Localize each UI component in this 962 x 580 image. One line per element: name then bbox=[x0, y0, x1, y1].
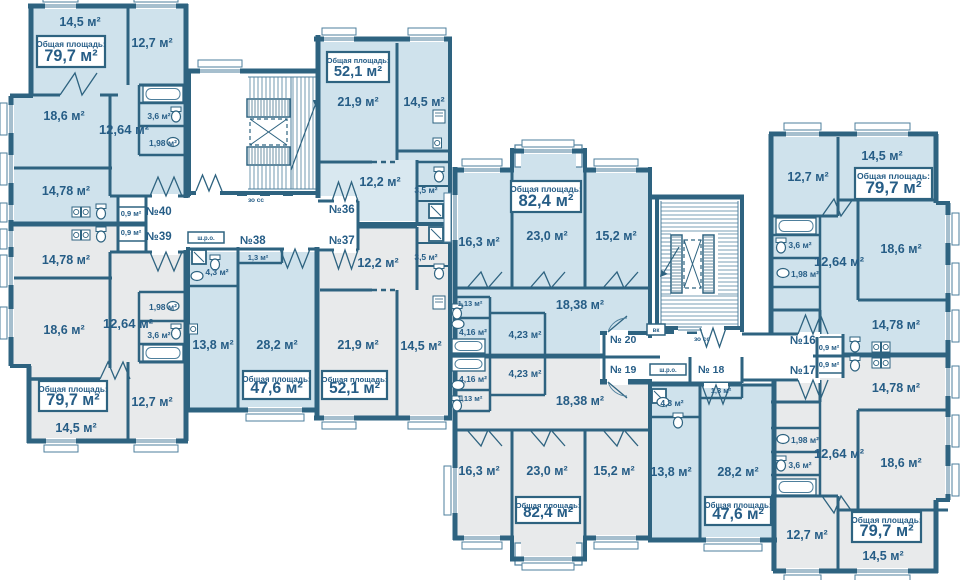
svg-text:1,13 м²: 1,13 м² bbox=[458, 299, 483, 308]
svg-text:0,9 м²: 0,9 м² bbox=[819, 360, 840, 369]
svg-text:23,0 м²: 23,0 м² bbox=[526, 464, 567, 478]
svg-text:79,7 м²: 79,7 м² bbox=[46, 391, 100, 409]
svg-text:1,98 м²: 1,98 м² bbox=[791, 269, 819, 279]
svg-text:47,6 м²: 47,6 м² bbox=[712, 506, 764, 523]
svg-text:4,3 м²: 4,3 м² bbox=[205, 267, 228, 277]
svg-text:12,7 м²: 12,7 м² bbox=[787, 170, 828, 184]
svg-text:4,3 м²: 4,3 м² bbox=[660, 398, 683, 408]
svg-text:№39: №39 bbox=[146, 231, 172, 243]
svg-text:№ 18: № 18 bbox=[698, 364, 724, 376]
svg-text:12,64 м²: 12,64 м² bbox=[99, 122, 150, 137]
svg-text:3,5 м²: 3,5 м² bbox=[414, 185, 437, 195]
svg-text:28,2 м²: 28,2 м² bbox=[256, 338, 297, 352]
svg-text:82,4 м²: 82,4 м² bbox=[523, 504, 573, 521]
svg-text:3,5 м²: 3,5 м² bbox=[414, 252, 437, 262]
svg-text:14,78 м²: 14,78 м² bbox=[872, 318, 920, 332]
svg-text:12,7 м²: 12,7 м² bbox=[131, 395, 172, 409]
svg-text:18,38 м²: 18,38 м² bbox=[556, 298, 604, 312]
svg-text:1,3 м²: 1,3 м² bbox=[711, 386, 732, 395]
svg-text:14,5 м²: 14,5 м² bbox=[861, 149, 902, 163]
svg-text:14,78 м²: 14,78 м² bbox=[42, 184, 90, 198]
svg-text:12,7 м²: 12,7 м² bbox=[131, 36, 172, 50]
svg-text:1,98 м²: 1,98 м² bbox=[791, 435, 819, 445]
svg-text:15,2 м²: 15,2 м² bbox=[593, 464, 634, 478]
svg-text:21,9 м²: 21,9 м² bbox=[337, 95, 378, 109]
svg-text:12,64 м²: 12,64 м² bbox=[103, 316, 154, 331]
svg-text:12,64 м²: 12,64 м² bbox=[814, 446, 865, 461]
svg-text:79,7 м²: 79,7 м² bbox=[859, 522, 914, 540]
svg-text:3,6 м²: 3,6 м² bbox=[788, 460, 811, 470]
svg-text:23,0 м²: 23,0 м² bbox=[526, 229, 567, 243]
svg-text:14,5 м²: 14,5 м² bbox=[55, 421, 96, 435]
svg-text:18,38 м²: 18,38 м² bbox=[556, 394, 604, 408]
svg-text:0,9 м²: 0,9 м² bbox=[121, 228, 142, 237]
svg-text:18,6 м²: 18,6 м² bbox=[43, 323, 84, 337]
svg-text:12,64 м²: 12,64 м² bbox=[814, 254, 865, 269]
svg-text:зо сс: зо сс bbox=[694, 336, 710, 343]
svg-text:52,1 м²: 52,1 м² bbox=[334, 64, 382, 80]
svg-text:1,98 м²: 1,98 м² bbox=[149, 138, 177, 148]
svg-text:№40: №40 bbox=[146, 206, 172, 218]
svg-text:3,6 м²: 3,6 м² bbox=[788, 240, 811, 250]
svg-text:14,78 м²: 14,78 м² bbox=[872, 381, 920, 395]
svg-text:4,16 м²: 4,16 м² bbox=[459, 327, 487, 337]
svg-text:№16: №16 bbox=[790, 335, 816, 347]
svg-text:0,9 м²: 0,9 м² bbox=[819, 343, 840, 352]
svg-text:18,6 м²: 18,6 м² bbox=[880, 242, 921, 256]
svg-text:4,16 м²: 4,16 м² bbox=[459, 374, 487, 384]
svg-text:1,13 м²: 1,13 м² bbox=[458, 394, 483, 403]
svg-text:18,6 м²: 18,6 м² bbox=[880, 456, 921, 470]
svg-text:вк: вк bbox=[653, 328, 660, 334]
svg-text:3,6 м²: 3,6 м² bbox=[147, 111, 170, 121]
svg-text:21,9 м²: 21,9 м² bbox=[337, 338, 378, 352]
svg-text:3,6 м²: 3,6 м² bbox=[147, 330, 170, 340]
svg-text:28,2 м²: 28,2 м² bbox=[717, 465, 758, 479]
svg-text:16,3 м²: 16,3 м² bbox=[458, 464, 499, 478]
svg-text:4,23 м²: 4,23 м² bbox=[509, 330, 543, 341]
svg-text:12,2 м²: 12,2 м² bbox=[359, 175, 400, 189]
svg-text:14,5 м²: 14,5 м² bbox=[403, 95, 444, 109]
svg-text:79,7 м²: 79,7 м² bbox=[865, 178, 921, 197]
svg-text:79,7 м²: 79,7 м² bbox=[44, 47, 98, 65]
svg-text:13,8 м²: 13,8 м² bbox=[650, 465, 691, 479]
svg-text:№ 19: № 19 bbox=[610, 364, 636, 376]
svg-text:13,8 м²: 13,8 м² bbox=[192, 338, 233, 352]
svg-text:14,5 м²: 14,5 м² bbox=[400, 339, 441, 353]
svg-text:16,3 м²: 16,3 м² bbox=[458, 235, 499, 249]
svg-text:№ 20: № 20 bbox=[610, 334, 636, 346]
svg-text:14,5 м²: 14,5 м² bbox=[862, 549, 903, 563]
svg-text:№17: №17 bbox=[790, 365, 816, 377]
svg-text:14,78 м²: 14,78 м² bbox=[42, 253, 90, 267]
svg-text:14,5 м²: 14,5 м² bbox=[59, 15, 100, 29]
svg-text:ш.р.о.: ш.р.о. bbox=[197, 236, 215, 242]
svg-text:18,6 м²: 18,6 м² bbox=[43, 109, 84, 123]
svg-text:47,6 м²: 47,6 м² bbox=[250, 380, 302, 397]
svg-text:ш.р.о.: ш.р.о. bbox=[659, 368, 677, 374]
svg-text:1,98 м²: 1,98 м² bbox=[149, 302, 177, 312]
svg-text:12,2 м²: 12,2 м² bbox=[357, 256, 398, 270]
svg-text:82,4 м²: 82,4 м² bbox=[519, 191, 574, 210]
svg-text:№38: №38 bbox=[240, 235, 266, 247]
svg-text:12,7 м²: 12,7 м² bbox=[786, 528, 827, 542]
svg-text:15,2 м²: 15,2 м² bbox=[595, 229, 636, 243]
svg-text:52,1 м²: 52,1 м² bbox=[329, 380, 380, 397]
svg-text:4,23 м²: 4,23 м² bbox=[509, 369, 543, 380]
svg-text:0,9 м²: 0,9 м² bbox=[121, 209, 142, 218]
svg-text:№36: №36 bbox=[329, 204, 355, 216]
svg-text:1,3 м²: 1,3 м² bbox=[248, 253, 269, 262]
svg-text:№37: №37 bbox=[329, 235, 355, 247]
svg-text:зо сс: зо сс bbox=[248, 197, 264, 204]
